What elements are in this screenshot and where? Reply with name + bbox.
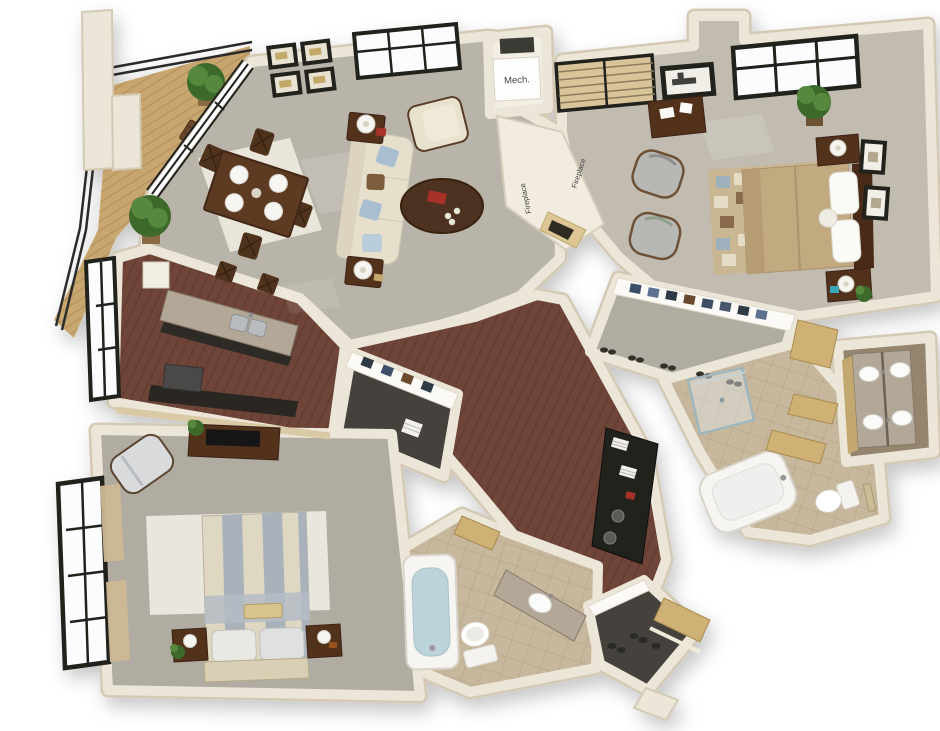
- wall-pillar-top-left-2: [112, 94, 141, 170]
- bed2-pillow: [211, 629, 256, 663]
- nightstand-south: [826, 268, 872, 302]
- bed-2: [202, 512, 311, 682]
- plan-root: Mech. Fireplace Fireplace: [54, 10, 936, 720]
- vanity-sink: [892, 411, 912, 426]
- end-table-north: [347, 112, 387, 144]
- master-window: [733, 36, 859, 98]
- kitchen-window: [86, 258, 119, 400]
- bed2-headboard: [204, 658, 309, 682]
- blinds-window: [556, 55, 655, 111]
- mech-label: Mech.: [504, 74, 530, 86]
- wall-pillar-top-left: [82, 10, 114, 170]
- master-wall-art: [660, 62, 717, 101]
- kitchen-column: [143, 262, 169, 288]
- end-table-south: [345, 256, 384, 288]
- accent-pillow: [819, 209, 837, 227]
- vanity-sink: [859, 367, 879, 382]
- master-bed: [742, 162, 874, 274]
- master-pillow: [829, 171, 860, 215]
- bathtub: [403, 554, 459, 670]
- dryer-door: [604, 532, 616, 544]
- floor-plan-svg: Mech. Fireplace Fireplace: [0, 0, 940, 731]
- nightstand-right: [306, 624, 342, 658]
- mech-shaft: [500, 37, 535, 54]
- vanity-room: [842, 350, 916, 454]
- nightstand-north: [816, 134, 860, 166]
- bed2-tray: [244, 603, 282, 618]
- nightstand-left: [170, 628, 208, 662]
- vanity-sink: [890, 363, 910, 378]
- floor-plan-stage: Mech. Fireplace Fireplace: [0, 0, 940, 731]
- bed2-pillow: [259, 627, 304, 661]
- vanity-sink: [863, 415, 883, 430]
- mechanical-closet: Mech.: [493, 37, 541, 101]
- washer-door: [612, 510, 624, 522]
- master-pillow: [831, 219, 862, 263]
- master-desk: [648, 96, 706, 138]
- kitchen-appliance: [163, 364, 203, 392]
- living-window: [354, 24, 460, 78]
- coffee-table: [401, 179, 483, 233]
